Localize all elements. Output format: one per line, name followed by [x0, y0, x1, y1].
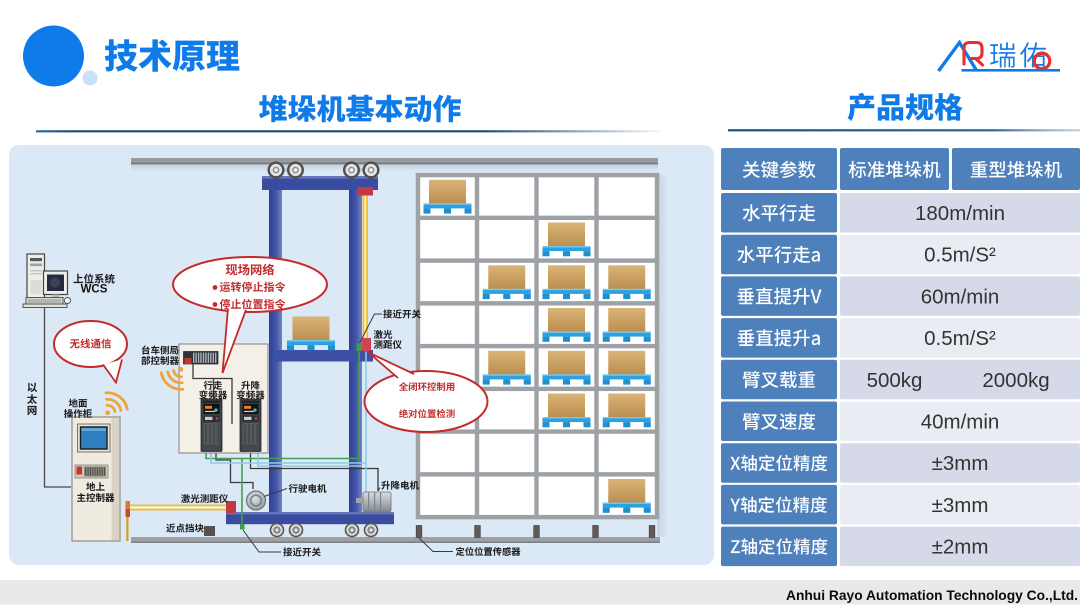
svg-text:±3mm: ±3mm	[932, 494, 989, 517]
svg-text:2000kg: 2000kg	[982, 369, 1049, 392]
svg-text:WCS: WCS	[81, 284, 108, 296]
svg-text:±3mm: ±3mm	[932, 452, 989, 475]
svg-text:±2mm: ±2mm	[932, 536, 989, 559]
svg-text:40m/min: 40m/min	[921, 410, 1000, 433]
svg-text:0.5m/S²: 0.5m/S²	[924, 244, 996, 267]
svg-text:500kg: 500kg	[867, 369, 923, 392]
svg-text:180m/min: 180m/min	[915, 202, 1005, 225]
svg-text:Anhui Rayo Automation Technolo: Anhui Rayo Automation Technology Co.,Ltd…	[786, 588, 1078, 603]
svg-text:60m/min: 60m/min	[921, 285, 1000, 308]
svg-text:0.5m/S²: 0.5m/S²	[924, 327, 996, 350]
